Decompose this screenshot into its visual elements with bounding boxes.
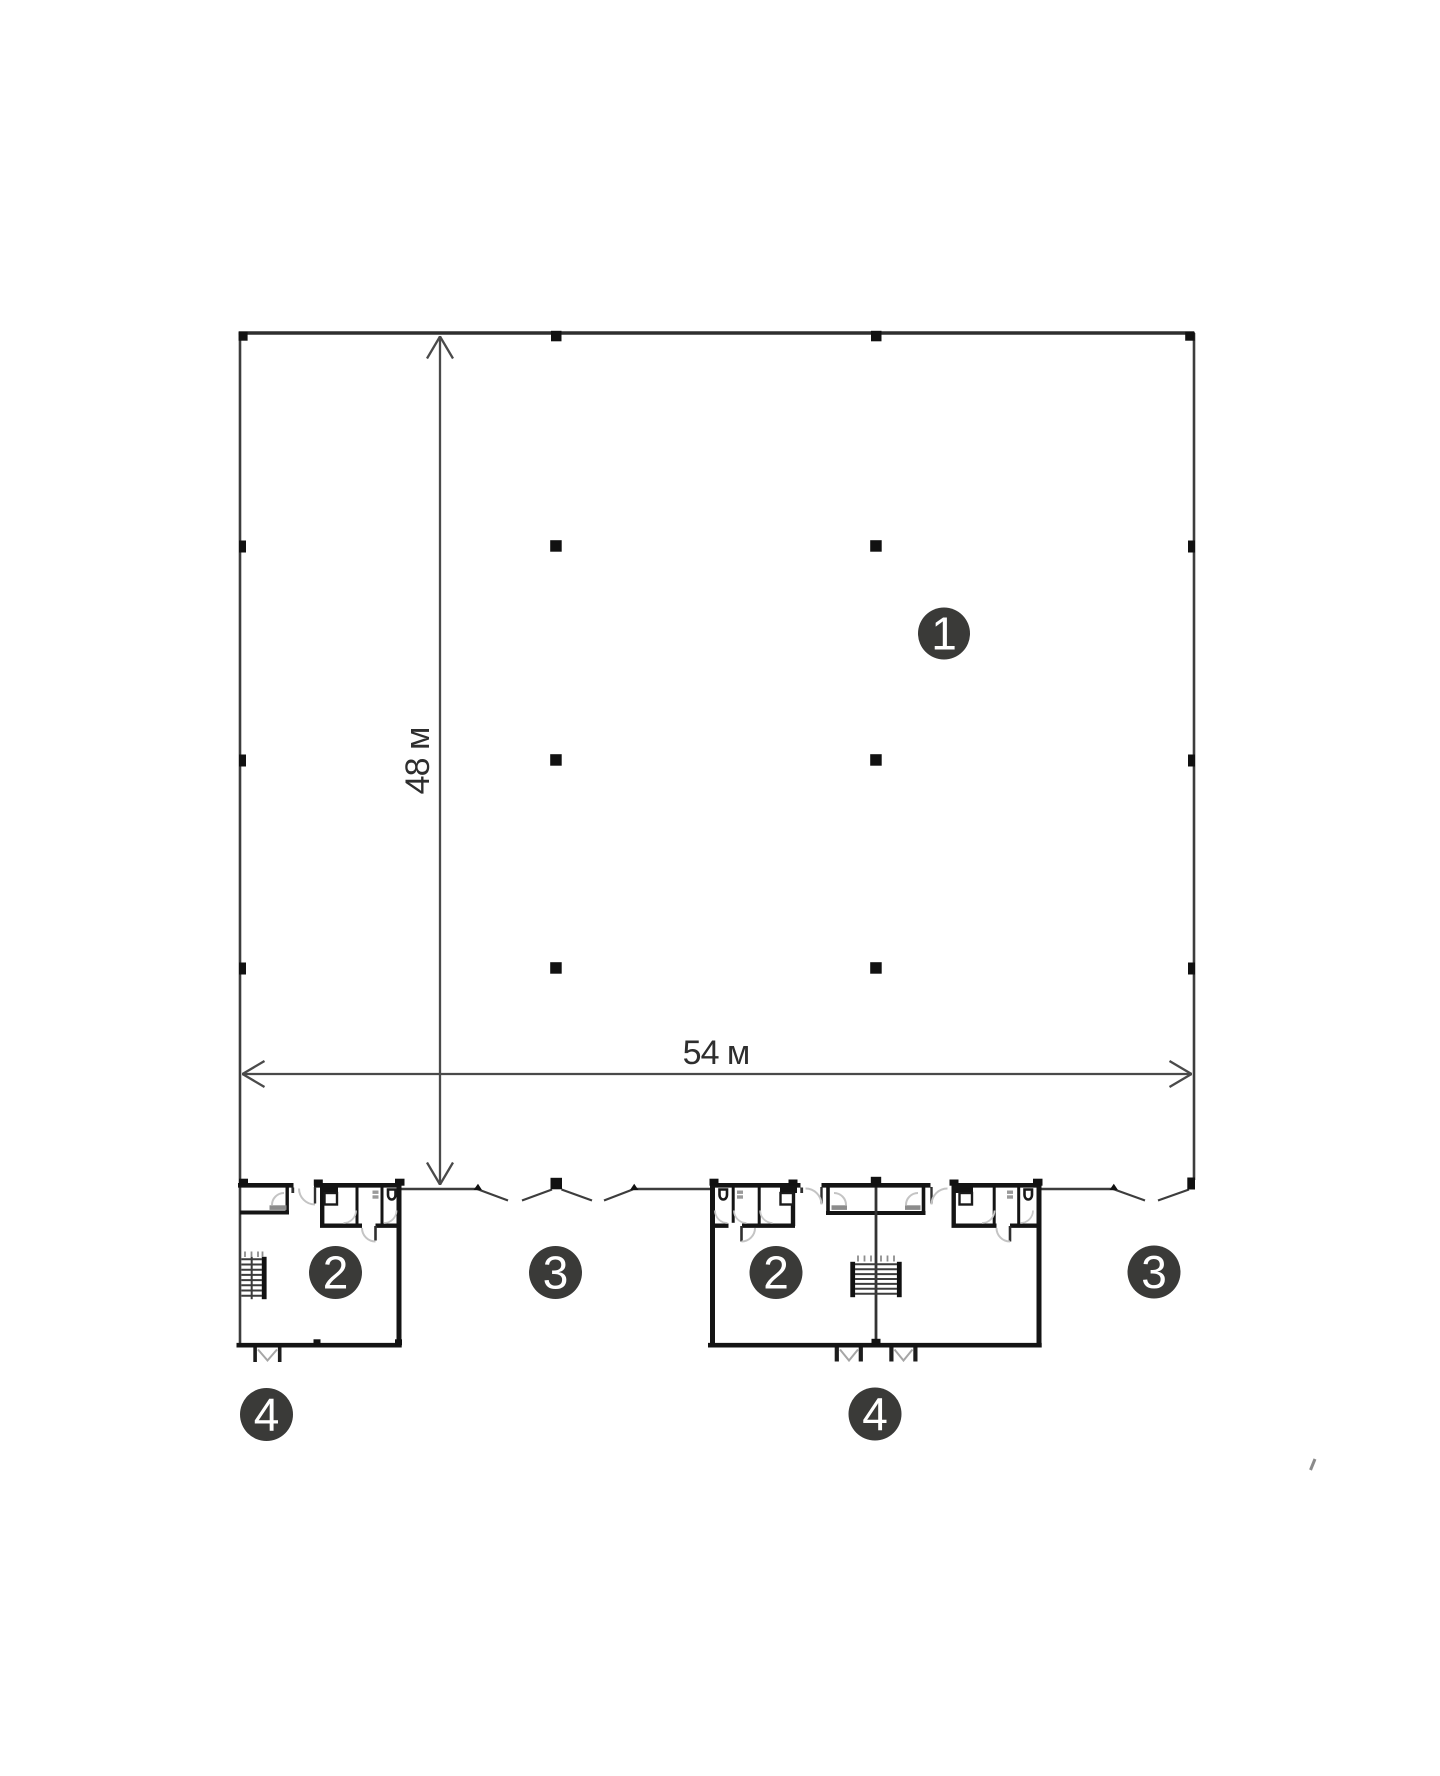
svg-text:2: 2	[323, 1247, 349, 1299]
svg-text:2: 2	[763, 1247, 789, 1299]
svg-text:48 м: 48 м	[399, 728, 437, 795]
svg-text:4: 4	[254, 1389, 280, 1441]
svg-text:1: 1	[931, 608, 957, 660]
svg-text:54 м: 54 м	[683, 1034, 750, 1072]
svg-text:4: 4	[862, 1388, 888, 1440]
svg-text:3: 3	[1141, 1246, 1167, 1298]
svg-text:3: 3	[543, 1247, 569, 1299]
